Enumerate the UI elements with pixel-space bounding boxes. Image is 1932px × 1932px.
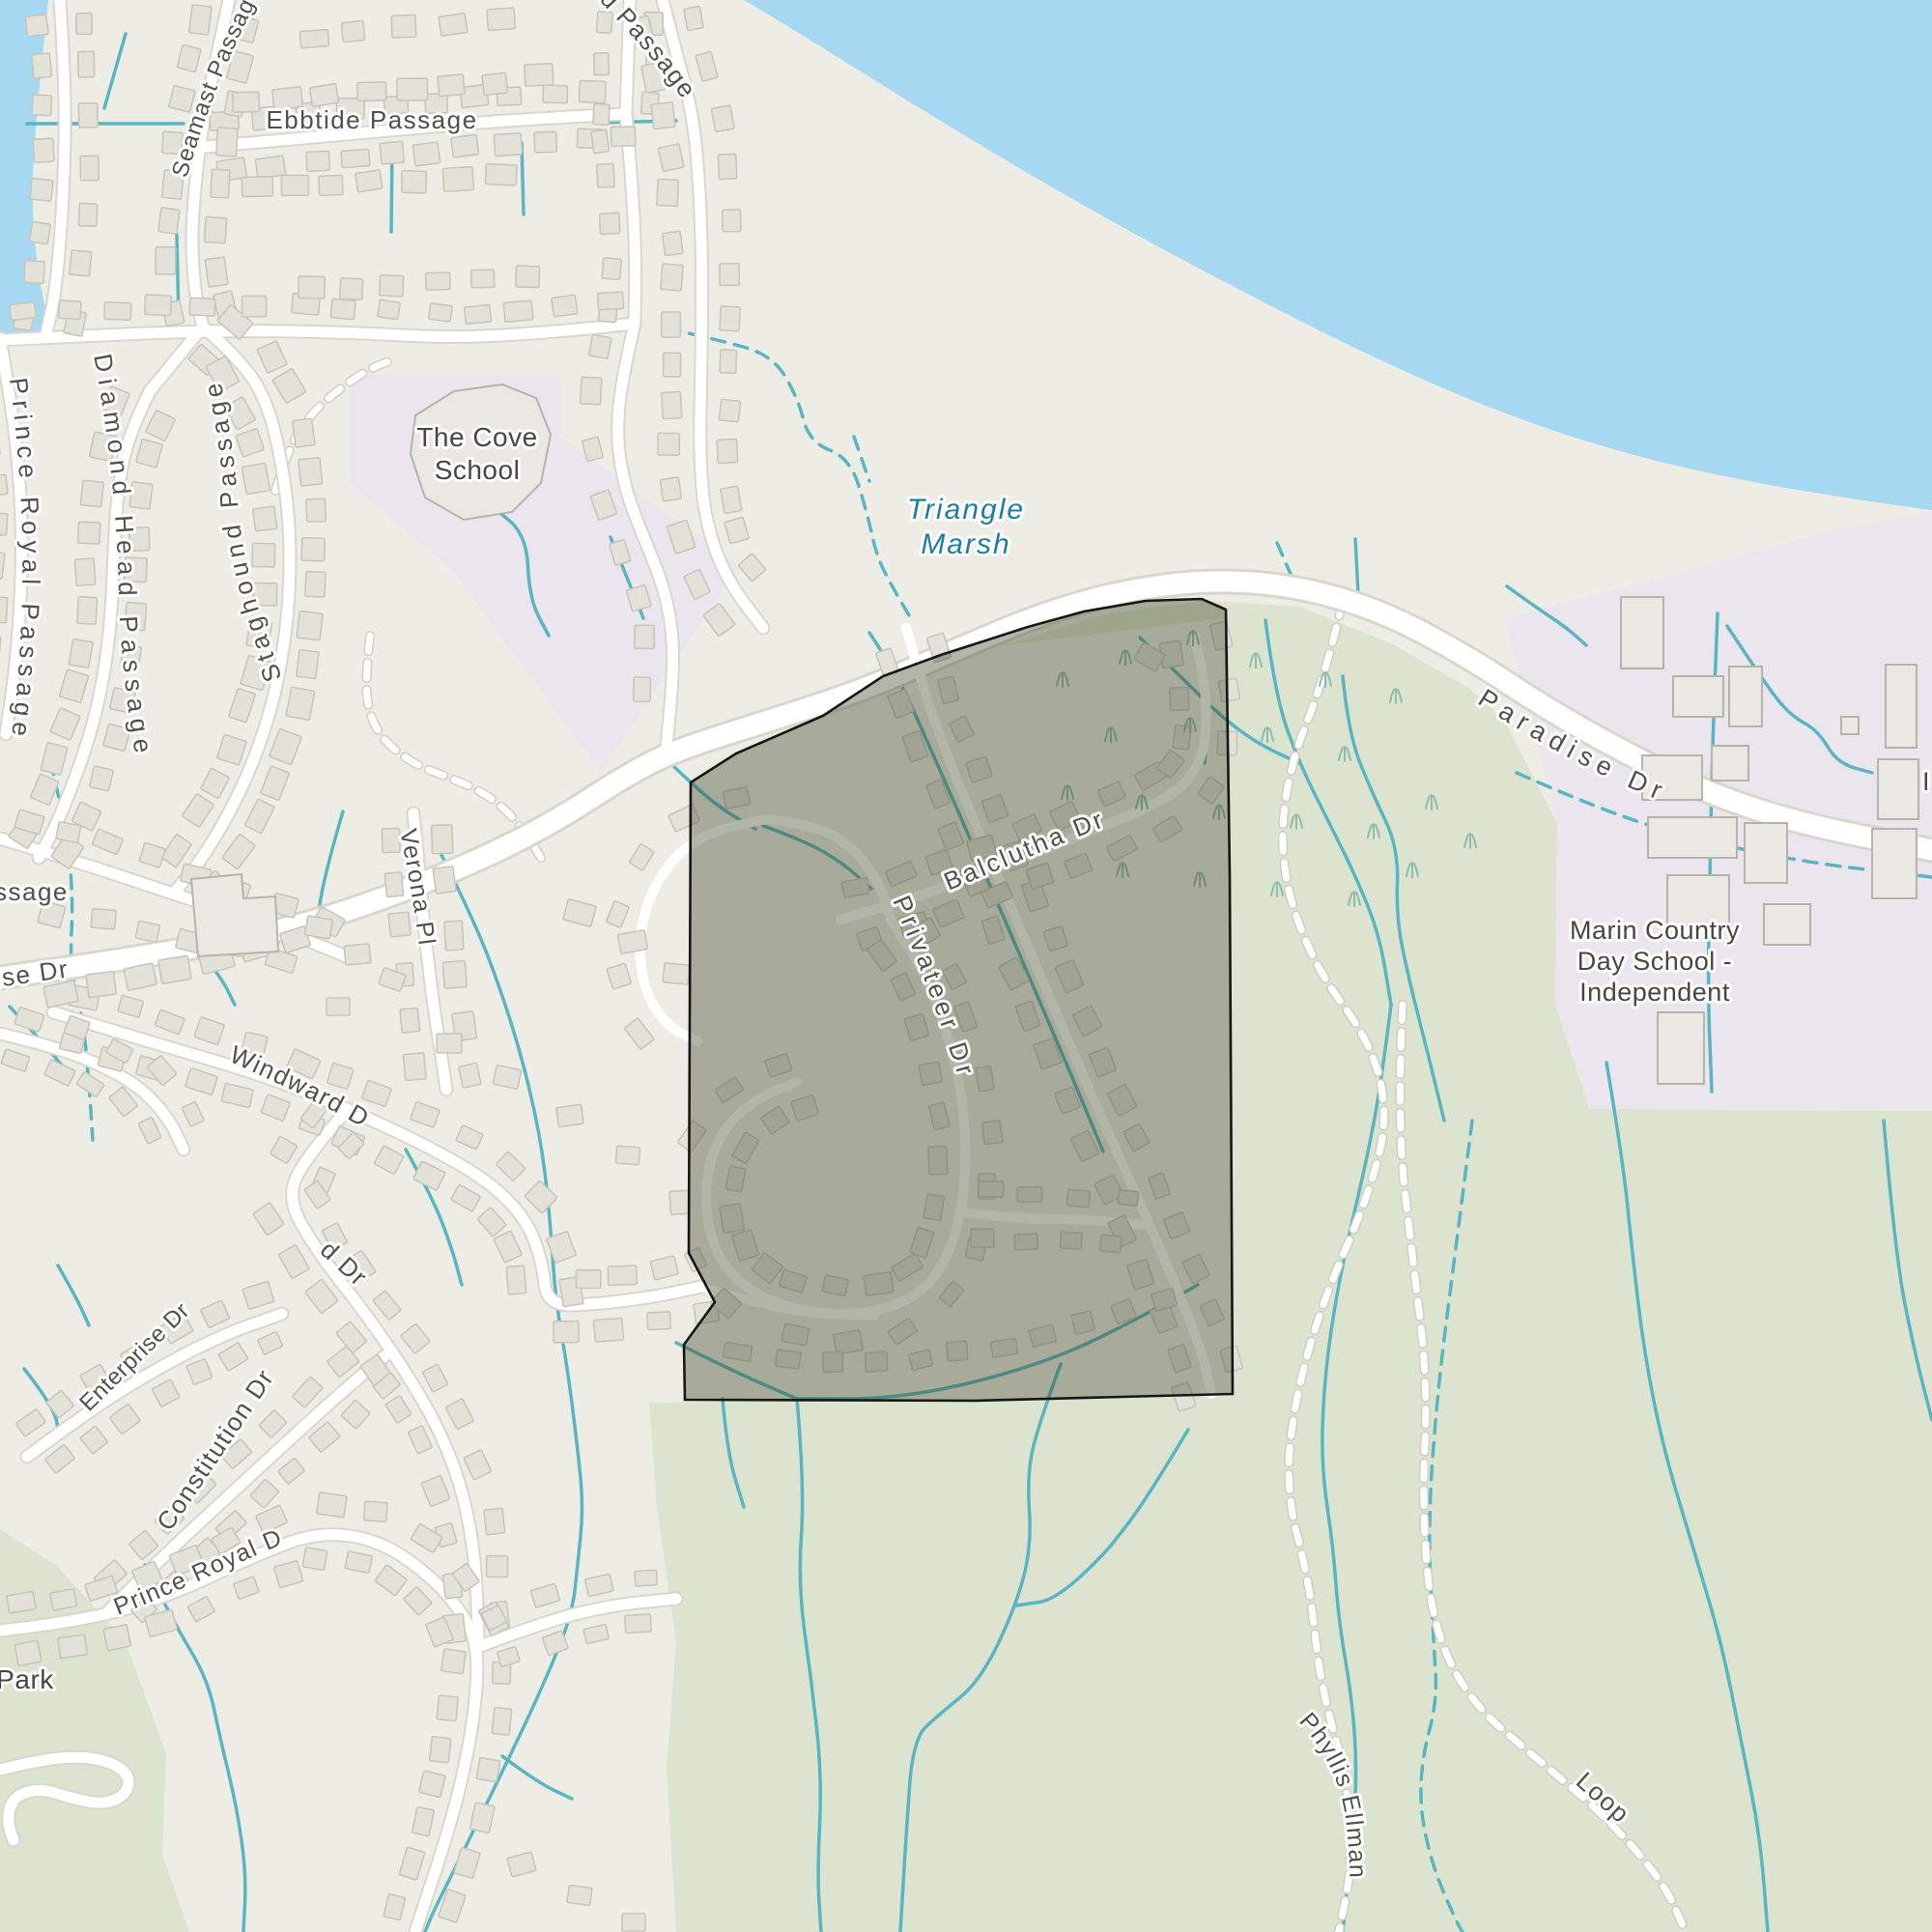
map-canvas[interactable]: Ebbtide Passage Seamast Passage Staghoun… [0,0,1932,1932]
label-mcds-1: Marin Country [1570,916,1740,945]
label-mcds-3: Independent [1579,978,1730,1007]
label-passage-fragment: ssage [0,877,69,906]
label-park: Park [0,1664,54,1694]
label-triangle-marsh-2: Marsh [921,528,1010,560]
label-cove-school-1: The Cove [416,422,537,452]
map-svg: Ebbtide Passage Seamast Passage Staghoun… [0,0,1932,1932]
label-i-fragment: I [1922,767,1930,796]
label-mcds-2: Day School - [1577,947,1733,976]
label-ebbtide-passage: Ebbtide Passage [266,105,477,134]
label-triangle-marsh-1: Triangle [907,494,1025,526]
label-cove-school-2: School [435,455,521,485]
